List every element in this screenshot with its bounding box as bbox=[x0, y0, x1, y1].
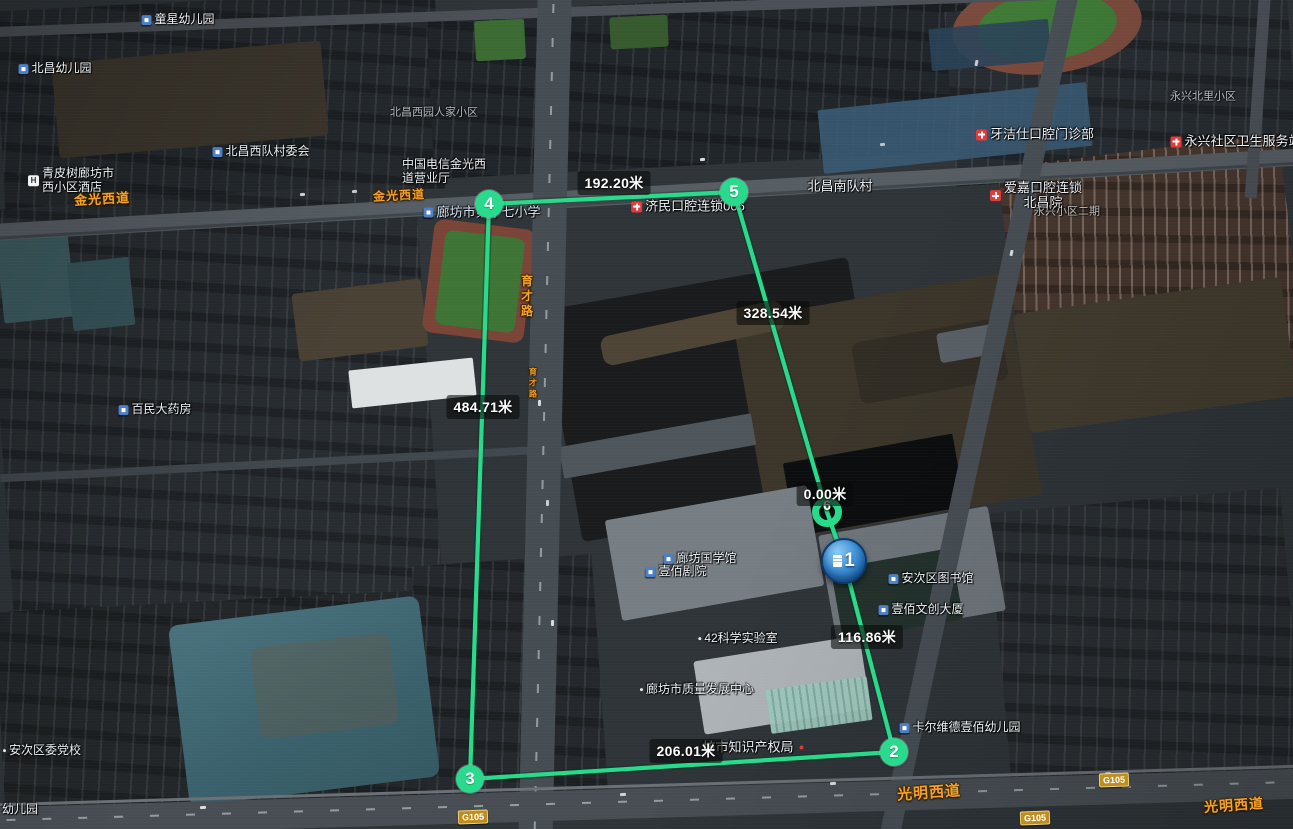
red-cross-icon bbox=[990, 191, 1001, 202]
poi-text: 百民大药房 bbox=[131, 403, 191, 417]
poi-label: 42科学实验室 bbox=[698, 632, 777, 646]
path-point-5-number: 5 bbox=[729, 182, 738, 202]
poi-label: 卡尔维德壹佰幼儿园 bbox=[899, 721, 1020, 735]
building-icon bbox=[888, 574, 898, 584]
red-dot-icon bbox=[800, 746, 804, 750]
red-cross-icon bbox=[631, 202, 642, 213]
poi-label: 壹佰剧院 bbox=[645, 565, 706, 579]
road-name-label: 育才路 bbox=[519, 275, 536, 320]
poi-label: 北昌西队村委会 bbox=[212, 145, 309, 159]
building-icon bbox=[118, 405, 128, 415]
poi-label: 幼儿园 bbox=[2, 803, 38, 817]
poi-text-line: 永兴社区卫生服务站 bbox=[1184, 135, 1293, 150]
poi-text: 安次区委党校 bbox=[9, 744, 81, 758]
hotel-icon: H bbox=[28, 176, 39, 187]
poi-text-line: 牙洁仕口腔门诊部 bbox=[990, 128, 1094, 143]
poi-text-line: 42科学实验室 bbox=[704, 632, 777, 646]
poi-text: 永兴小区二期 bbox=[1034, 206, 1100, 219]
distance-label-192: 192.20米 bbox=[578, 171, 651, 195]
poi-text-line: 北昌南队村 bbox=[807, 180, 872, 195]
poi-label: 安次区图书馆 bbox=[888, 572, 973, 586]
poi-label: 北昌南队村 bbox=[807, 180, 872, 195]
poi-label: 童星幼儿园 bbox=[141, 13, 214, 27]
building-icon bbox=[141, 15, 151, 25]
distance-label-328: 328.54米 bbox=[737, 301, 810, 325]
poi-text: 北昌幼儿园 bbox=[31, 62, 91, 76]
placemark-number: 1 bbox=[844, 550, 855, 572]
path-point-3-number: 3 bbox=[465, 769, 474, 789]
note-icon bbox=[833, 555, 842, 567]
poi-text: 北昌南队村 bbox=[807, 180, 872, 195]
poi-text-line: 北昌西园人家小区 bbox=[390, 107, 478, 120]
poi-text-line: 童星幼儿园 bbox=[154, 13, 214, 27]
road-name-label: 育才路 bbox=[528, 368, 539, 401]
poi-text: 永兴北里小区 bbox=[1170, 91, 1236, 104]
poi-text-line: 壹佰剧院 bbox=[658, 565, 706, 579]
poi-text: 壹佰剧院 bbox=[658, 565, 706, 579]
poi-text: 42科学实验室 bbox=[704, 632, 777, 646]
highway-shield-g105: G105 bbox=[458, 809, 489, 824]
building-icon bbox=[18, 64, 28, 74]
poi-label: 廊坊市质量发展中心 bbox=[640, 683, 754, 697]
path-point-2-number: 2 bbox=[889, 742, 898, 762]
distance-label-484: 484.71米 bbox=[447, 395, 520, 419]
poi-label: 北昌西园人家小区 bbox=[390, 107, 478, 120]
path-point-5[interactable]: 5 bbox=[720, 178, 748, 206]
blue-placemark-1[interactable]: 1 bbox=[821, 538, 867, 584]
building-icon bbox=[878, 605, 888, 615]
poi-label: 壹佰文创大厦 bbox=[878, 603, 963, 617]
poi-text: 牙洁仕口腔门诊部 bbox=[990, 128, 1094, 143]
poi-text-line: 卡尔维德壹佰幼儿园 bbox=[912, 721, 1020, 735]
poi-text-line: 爱嘉口腔连锁 bbox=[1004, 181, 1082, 196]
poi-text-line: 百民大药房 bbox=[131, 403, 191, 417]
poi-text-line: 永兴小区二期 bbox=[1034, 206, 1100, 219]
distance-label-116: 116.86米 bbox=[831, 625, 903, 649]
path-point-2[interactable]: 2 bbox=[880, 738, 908, 766]
path-point-4-number: 4 bbox=[484, 194, 493, 214]
poi-text-line: 道营业厅 bbox=[402, 172, 450, 186]
building-icon bbox=[899, 723, 909, 733]
road-label-layer: 金光西道金光西道光明西道光明西道育才路育才路G105G105G105 bbox=[0, 0, 1293, 829]
building-icon bbox=[212, 147, 222, 157]
poi-label: 永兴北里小区 bbox=[1170, 91, 1236, 104]
road-name-label: 光明西道 bbox=[896, 779, 961, 804]
poi-text-line: 北昌西队村委会 bbox=[225, 145, 309, 159]
poi-text: 壹佰文创大厦 bbox=[891, 603, 963, 617]
poi-text-line: 永兴北里小区 bbox=[1170, 91, 1236, 104]
poi-text-line: 壹佰文创大厦 bbox=[891, 603, 963, 617]
poi-text-line: 青皮树廊坊市 bbox=[42, 167, 114, 181]
distance-label-0: 0.00米 bbox=[797, 482, 854, 506]
poi-text: 卡尔维德壹佰幼儿园 bbox=[912, 721, 1020, 735]
poi-dot-icon bbox=[698, 637, 701, 640]
building-icon bbox=[645, 567, 655, 577]
poi-text: 北昌西队村委会 bbox=[225, 145, 309, 159]
distance-label-206: 206.01米 bbox=[650, 739, 723, 763]
road-name-label: 金光西道 bbox=[373, 185, 426, 205]
satellite-map-viewport[interactable]: 童星幼儿园北昌幼儿园北昌西园人家小区H青皮树廊坊市西小区酒店中国电信金光西道营业… bbox=[0, 0, 1293, 829]
poi-label: 北昌幼儿园 bbox=[18, 62, 91, 76]
poi-text: 北昌西园人家小区 bbox=[390, 107, 478, 120]
poi-text-line: 廊坊市质量发展中心 bbox=[646, 683, 754, 697]
path-point-3[interactable]: 3 bbox=[456, 765, 484, 793]
poi-text: 幼儿园 bbox=[2, 803, 38, 817]
poi-label: 安次区委党校 bbox=[3, 744, 81, 758]
poi-text-line: 北昌幼儿园 bbox=[31, 62, 91, 76]
path-point-4[interactable]: 4 bbox=[475, 190, 503, 218]
poi-text-line: 幼儿园 bbox=[2, 803, 38, 817]
poi-label: 牙洁仕口腔门诊部 bbox=[976, 128, 1094, 143]
poi-dot-icon bbox=[3, 749, 6, 752]
poi-dot-icon bbox=[640, 688, 643, 691]
building-icon bbox=[663, 554, 673, 564]
poi-text-line: 安次区委党校 bbox=[9, 744, 81, 758]
highway-shield-g105: G105 bbox=[1099, 772, 1130, 787]
poi-text-line: 安次区图书馆 bbox=[901, 572, 973, 586]
road-name-label: 金光西道 bbox=[74, 187, 131, 209]
poi-label: 永兴小区二期 bbox=[1034, 206, 1100, 219]
poi-text: 廊坊市质量发展中心 bbox=[646, 683, 754, 697]
poi-label: 中国电信金光西道营业厅 bbox=[402, 158, 486, 186]
red-cross-icon bbox=[1170, 137, 1181, 148]
red-cross-icon bbox=[976, 130, 987, 141]
poi-text: 童星幼儿园 bbox=[154, 13, 214, 27]
poi-text: 永兴社区卫生服务站 bbox=[1184, 135, 1293, 150]
poi-label: 永兴社区卫生服务站 bbox=[1170, 135, 1293, 150]
poi-label: 百民大药房 bbox=[118, 403, 191, 417]
building-icon bbox=[423, 208, 433, 218]
highway-shield-g105: G105 bbox=[1020, 810, 1051, 825]
poi-text: 安次区图书馆 bbox=[901, 572, 973, 586]
poi-text: 中国电信金光西道营业厅 bbox=[402, 158, 486, 186]
road-name-label: 光明西道 bbox=[1203, 793, 1264, 817]
poi-text-line: 中国电信金光西 bbox=[402, 158, 486, 172]
